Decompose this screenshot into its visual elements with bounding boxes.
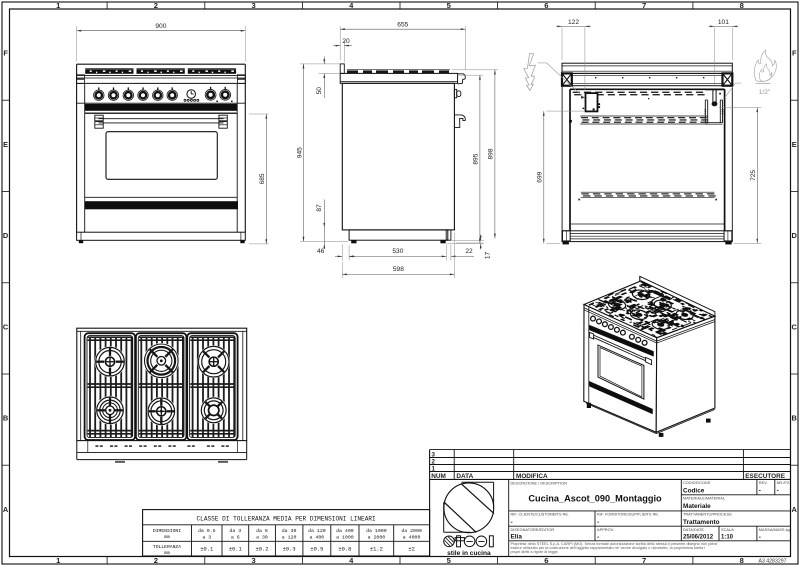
svg-text:TOLLERANZA: TOLLERANZA [153,544,181,550]
svg-text:a 3: a 3 [202,534,211,540]
svg-text:±2: ±2 [408,547,414,553]
svg-text:7: 7 [642,1,646,10]
svg-text:NUM: NUM [431,473,446,480]
svg-text:598: 598 [393,266,404,273]
svg-text:F: F [3,49,8,58]
svg-text:RIF. FORNITORE/SUPPLIER'S RE.: RIF. FORNITORE/SUPPLIER'S RE. [597,512,659,517]
svg-text:±0.1: ±0.1 [200,547,213,553]
svg-text:655: 655 [397,22,408,29]
svg-text:MASSA/MASS kg: MASSA/MASS kg [759,527,790,532]
svg-text:CLASSE DI TOLLERANZA MEDIA PER: CLASSE DI TOLLERANZA MEDIA PER DIMENSION… [197,515,377,522]
svg-text:da 30: da 30 [282,528,297,534]
svg-text:Codice: Codice [683,487,705,494]
svg-text:46: 46 [317,248,325,255]
svg-text:2: 2 [154,1,158,10]
svg-text:D: D [3,231,9,240]
svg-text:50: 50 [316,87,323,95]
svg-text:a 120: a 120 [282,534,297,540]
svg-text:da 2000: da 2000 [401,528,422,534]
svg-text:±0.2: ±0.2 [256,547,269,553]
svg-text:530: 530 [392,248,403,255]
svg-text:DISEGNATORE/EDITOR: DISEGNATORE/EDITOR [511,527,555,532]
svg-text:DATA: DATA [456,473,473,480]
svg-text:a 6: a 6 [231,534,240,540]
svg-text:da 400: da 400 [336,528,354,534]
svg-text:NR./PZ.: NR./PZ. [777,480,791,485]
svg-text:a 1000: a 1000 [336,534,354,540]
svg-text:DIMENSIONI: DIMENSIONI [153,528,181,534]
svg-text:87: 87 [316,204,323,212]
svg-text:6: 6 [544,556,548,565]
svg-text:22: 22 [465,248,473,255]
svg-text:7: 7 [642,556,646,565]
svg-text:MATERIALE/MATERIAL: MATERIALE/MATERIAL [683,496,726,501]
svg-text:895: 895 [473,153,480,164]
svg-text:-: - [777,488,779,495]
svg-text:3: 3 [251,556,255,565]
svg-text:685: 685 [259,173,266,184]
svg-text:A: A [3,505,9,514]
svg-text:±0.5: ±0.5 [310,547,323,553]
svg-text:da 3: da 3 [229,528,241,534]
svg-text:1/2": 1/2" [759,89,771,96]
svg-text:ESECUTORE: ESECUTORE [745,473,785,480]
svg-text:101: 101 [718,19,729,26]
svg-text:2: 2 [432,458,436,465]
svg-text:C: C [792,322,798,331]
svg-text:a 4000: a 4000 [403,534,421,540]
svg-text:122: 122 [568,19,579,26]
svg-text:mm: mm [164,551,170,556]
svg-text:a 30: a 30 [256,534,268,540]
svg-text:±0.8: ±0.8 [338,547,351,553]
svg-text:25/06/2012: 25/06/2012 [683,535,714,541]
svg-text:a 400: a 400 [310,534,325,540]
svg-text:945: 945 [296,147,303,158]
svg-text:3: 3 [251,1,255,10]
svg-text:da 120: da 120 [308,528,326,534]
svg-text:-: - [597,519,599,526]
svg-text:RIF. CLIENTE/CUSTOMER'S RE.: RIF. CLIENTE/CUSTOMER'S RE. [511,512,570,517]
svg-text:Elia: Elia [511,534,523,541]
svg-text:17: 17 [485,252,492,260]
svg-text:-: - [759,534,761,541]
svg-text:da 1000: da 1000 [366,528,387,534]
svg-text:mm: mm [164,535,170,540]
svg-text:SCALA: SCALA [721,527,734,532]
svg-text:900: 900 [155,23,166,30]
svg-text:6: 6 [544,1,548,10]
svg-text:a 2000: a 2000 [368,534,386,540]
svg-text:E: E [3,140,8,149]
svg-text:APPROV.: APPROV. [597,527,614,532]
svg-text:±0.1: ±0.1 [229,547,242,553]
svg-text:2: 2 [154,556,158,565]
svg-text:propri diritti a rigore di leg: propri diritti a rigore di legge. [511,550,559,554]
svg-text:1: 1 [432,465,436,472]
svg-text:±0.3: ±0.3 [283,547,296,553]
svg-text:REV.: REV. [759,480,768,485]
svg-text:8: 8 [740,1,744,10]
svg-text:DESCRIZIONE / DESCRIPTION: DESCRIZIONE / DESCRIPTION [511,481,568,486]
svg-text:B: B [3,414,8,423]
svg-text:E: E [792,140,797,149]
svg-text:A3 4283297: A3 4283297 [759,559,787,565]
svg-text:-: - [759,488,761,495]
svg-text:DATA/DATE: DATA/DATE [683,527,704,532]
svg-text:A: A [792,505,798,514]
svg-text:CODICE/CODE: CODICE/CODE [683,480,711,485]
svg-text:1:10: 1:10 [721,535,734,541]
svg-text:3: 3 [432,451,436,458]
svg-text:D: D [792,231,798,240]
svg-text:898: 898 [488,148,495,159]
svg-text:-: - [511,519,513,526]
svg-text:F: F [792,49,797,58]
svg-text:da 0.5: da 0.5 [198,528,216,534]
svg-text:20: 20 [342,38,350,45]
svg-text:±1.2: ±1.2 [370,547,383,553]
svg-text:TRATTAMENTO/PROCESS: TRATTAMENTO/PROCESS [683,512,732,517]
svg-text:Materiale: Materiale [683,503,711,510]
svg-text:699: 699 [537,171,544,182]
svg-text:B: B [792,414,797,423]
svg-text:MODIFICA: MODIFICA [516,473,548,480]
svg-text:-: - [597,534,599,541]
svg-text:C: C [3,322,9,331]
svg-text:725: 725 [750,170,757,181]
svg-text:da 6: da 6 [256,528,268,534]
svg-text:8: 8 [740,556,744,565]
svg-text:stile in cucina: stile in cucina [447,550,491,557]
svg-text:Cucina_Ascot_090_Montaggio: Cucina_Ascot_090_Montaggio [528,494,662,504]
svg-text:Trattamento: Trattamento [683,519,720,526]
